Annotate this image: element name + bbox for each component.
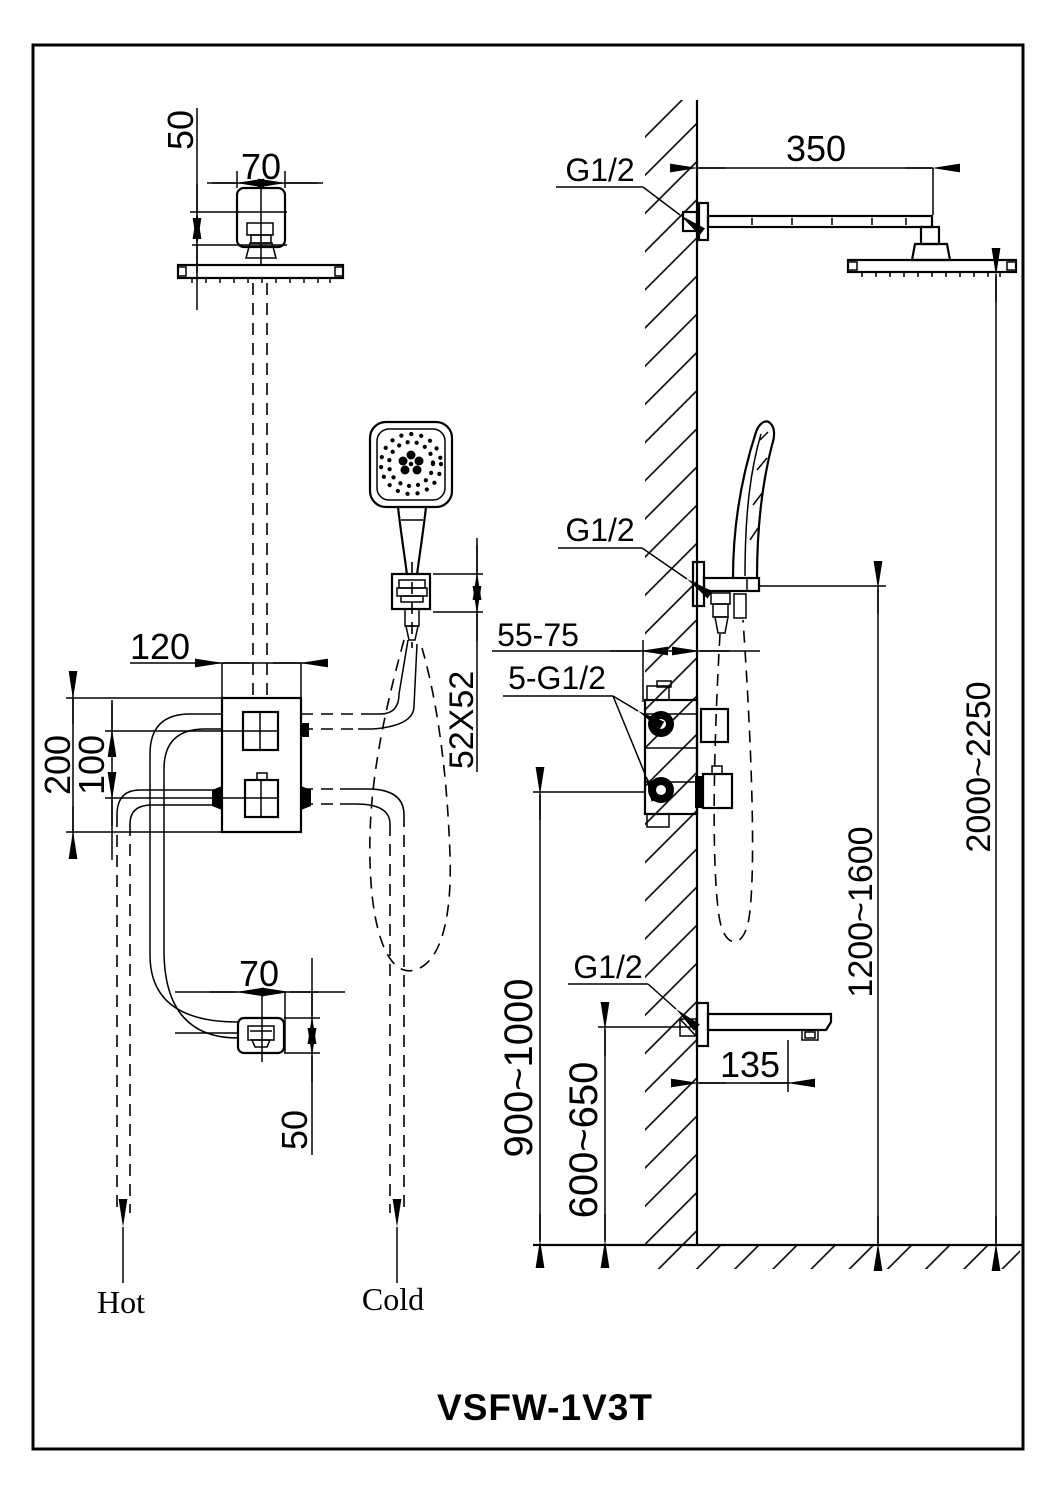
dim-valve-front: 120 200 100: [37, 626, 310, 860]
model-code: VSFW-1V3T: [437, 1387, 653, 1428]
technical-drawing-page: 70 50 120: [0, 0, 1058, 1497]
dim-holder-height: 1200~1600: [758, 586, 886, 1245]
side-view: 350 G1/2 2000~2250: [492, 100, 1022, 1269]
mixer-valve-front: [212, 698, 311, 832]
floor-hatch: [645, 1245, 1020, 1269]
dim-arm: 350 G1/2: [556, 128, 933, 215]
dim-knob-spacing: 100: [71, 735, 112, 795]
spout-thread-label: G1/2: [573, 949, 642, 985]
cold-label: Cold: [362, 1281, 424, 1317]
front-view: 70 50 120: [37, 108, 483, 1320]
dim-arm-length: 350: [786, 128, 846, 169]
dim-holder-size: 52X52: [443, 671, 481, 769]
dim-spout-height-value: 600~650: [562, 1062, 606, 1219]
dim-valve-width: 120: [130, 626, 190, 667]
drawing-border: [33, 45, 1023, 1449]
dim-spout-width: 70: [239, 953, 279, 994]
dim-head-mount-width: 70: [241, 146, 281, 187]
rain-shower-head-front: [178, 188, 343, 696]
hand-shower-front: [370, 422, 452, 648]
rain-shower-side: [683, 203, 1016, 277]
tub-spout-front: 70 50: [175, 953, 345, 1155]
dim-head-height-value: 2000~2250: [960, 681, 998, 852]
holder-thread-label: G1/2: [565, 512, 634, 548]
supply-labels: Hot Cold: [97, 1227, 424, 1320]
dim-spout-drop: 50: [274, 1110, 315, 1150]
shower-installation-diagram: 70 50 120: [0, 0, 1058, 1497]
dim-head-height: 2000~2250: [960, 274, 998, 1245]
arm-thread-label: G1/2: [565, 152, 634, 188]
dim-holder-height-value: 1200~1600: [842, 826, 880, 997]
dim-valve-height-value: 900~1000: [497, 978, 541, 1157]
dim-head-drop: 50: [160, 110, 201, 150]
dim-spout-reach: 135: [720, 1044, 780, 1085]
hot-label: Hot: [97, 1284, 145, 1320]
wall-section: [533, 100, 1022, 1269]
dim-embed-depth: 55-75: [497, 617, 579, 653]
ports-thread-label: 5-G1/2: [508, 660, 606, 696]
dim-head-top: 70 50: [160, 108, 323, 310]
